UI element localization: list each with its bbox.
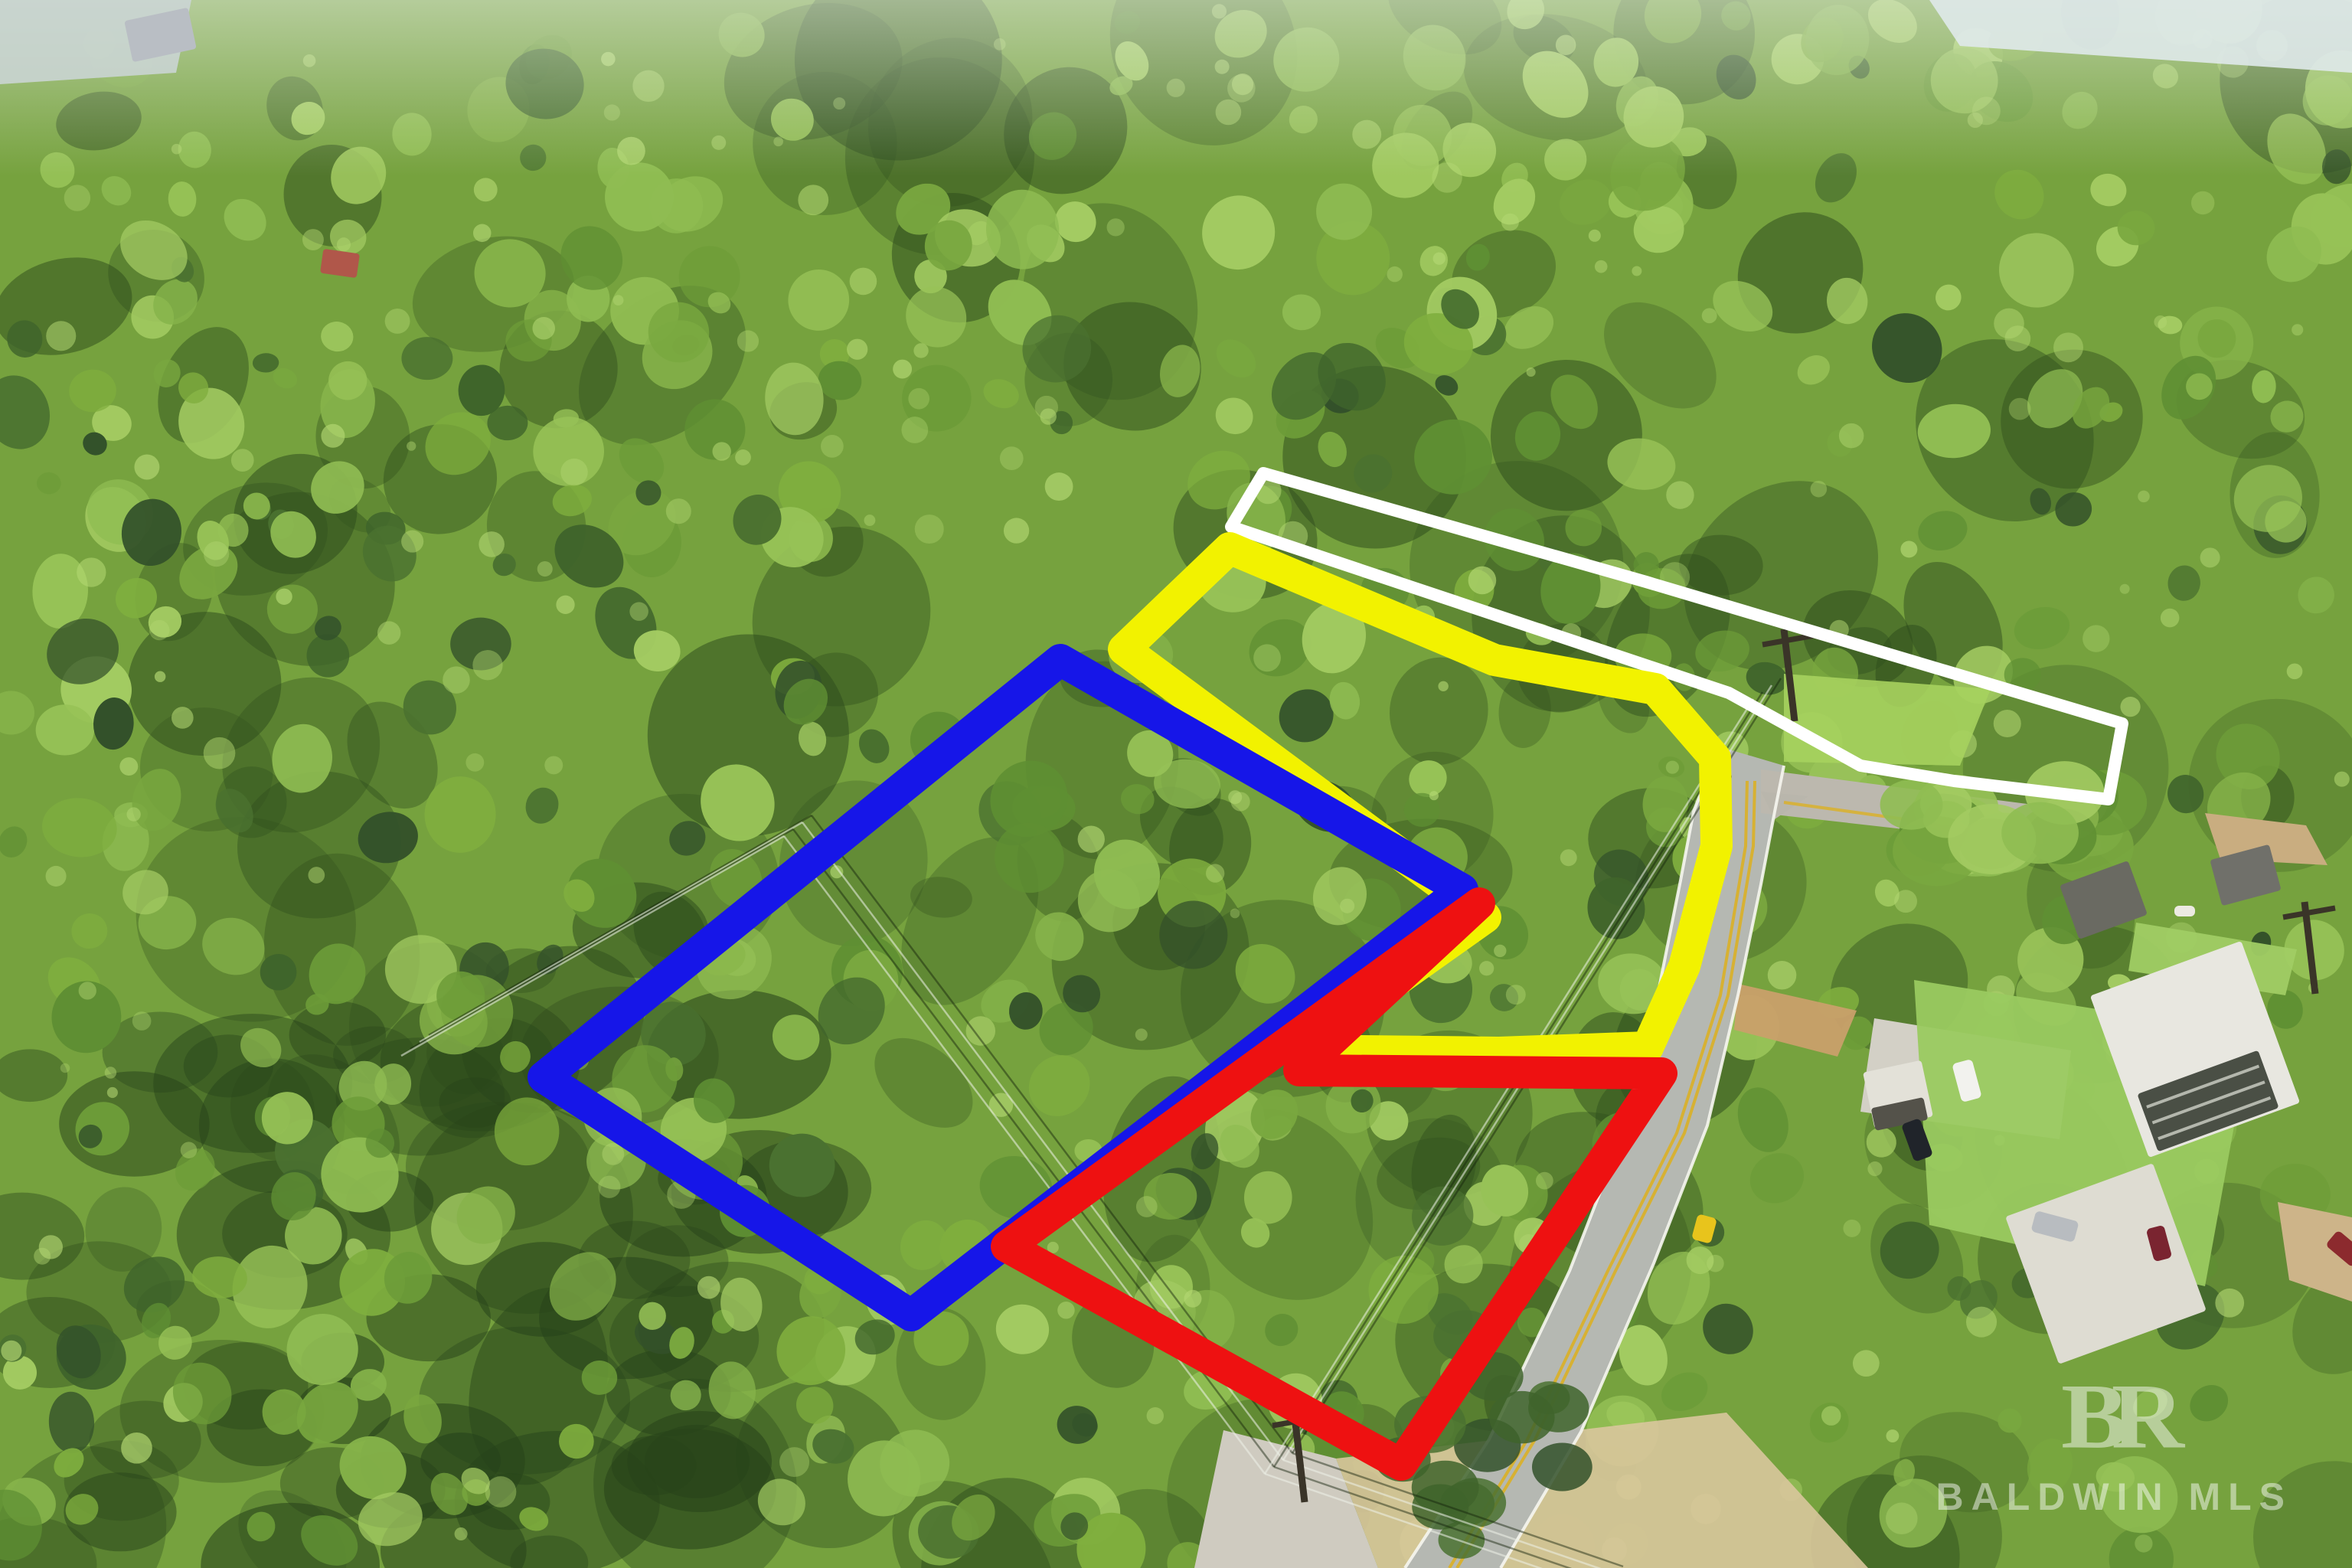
red-roof-nw — [320, 249, 360, 278]
aerial-photo: BR BALDWIN MLS — [0, 0, 2352, 1568]
aerial-photo-canvas — [0, 0, 2352, 1568]
white-car-north — [2174, 906, 2195, 916]
roadside-grass — [1784, 674, 1991, 766]
